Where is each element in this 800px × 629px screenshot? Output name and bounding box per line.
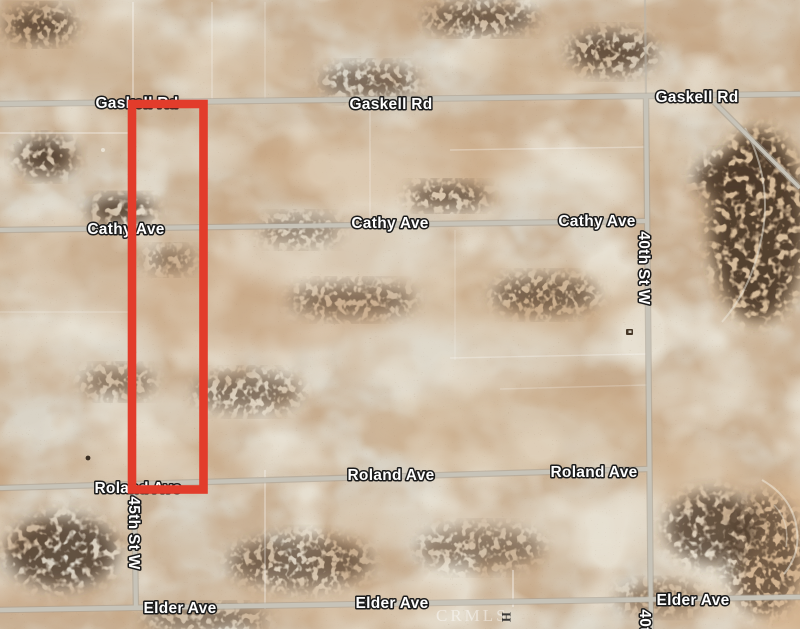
watermark-mark: H xyxy=(499,612,514,622)
road-label-cathy-central: Cathy Ave xyxy=(351,215,428,232)
road-label-elder-west: Elder Ave xyxy=(143,600,216,617)
road-label-elder-central: Elder Ave xyxy=(355,595,428,612)
map-canvas[interactable]: Gaskell Rd Gaskell Rd Gaskell Rd Cathy A… xyxy=(0,0,800,629)
watermark: CRMLS H xyxy=(436,606,514,625)
road-label-cathy-west: Cathy Ave xyxy=(87,221,164,238)
road-label-gaskell-central: Gaskell Rd xyxy=(349,96,432,113)
road-label-cathy-east: Cathy Ave xyxy=(558,213,635,230)
road-label-45th-st-w: 45th St W xyxy=(125,496,142,569)
watermark-crmls: CRMLS xyxy=(436,606,509,625)
road-label-40th-st-w-bottom: 40th St W xyxy=(636,609,653,629)
listing-map: Gaskell Rd Gaskell Rd Gaskell Rd Cathy A… xyxy=(0,0,800,629)
road-label-roland-central: Roland Ave xyxy=(347,467,434,484)
road-label-elder-east: Elder Ave xyxy=(656,592,729,609)
road-40th-st-w-upper xyxy=(645,0,646,98)
road-label-roland-east: Roland Ave xyxy=(550,464,637,481)
road-label-gaskell-east: Gaskell Rd xyxy=(655,89,738,106)
road-label-40th-st-w: 40th St W xyxy=(635,231,652,304)
